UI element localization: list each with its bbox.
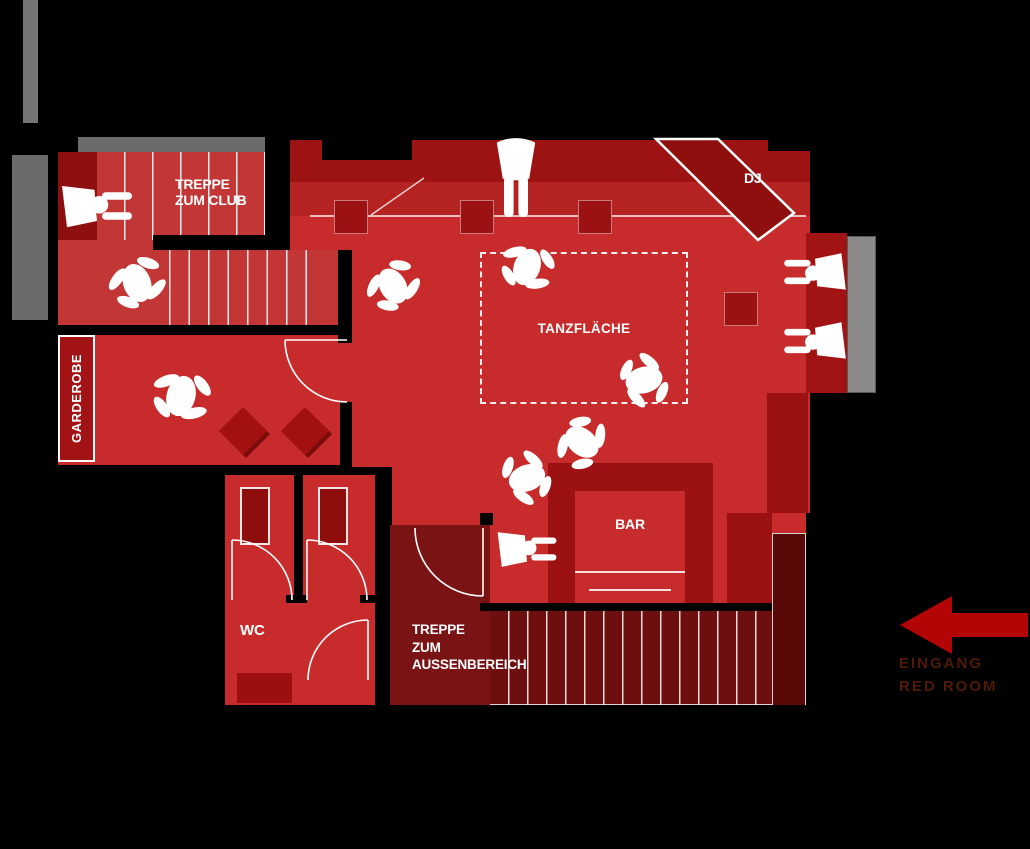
entrance-strip-right bbox=[806, 233, 847, 393]
speaker-box bbox=[578, 200, 612, 234]
wc-sink bbox=[237, 673, 292, 703]
speaker-box bbox=[724, 292, 758, 326]
bar-shelf-line bbox=[589, 589, 671, 591]
speaker-box bbox=[334, 200, 368, 234]
bar-shelf-line bbox=[575, 571, 685, 573]
bar-label: BAR bbox=[575, 516, 685, 532]
wall-sliver bbox=[806, 513, 810, 611]
wall-stub bbox=[480, 513, 493, 525]
wall-segment-top-left bbox=[23, 0, 38, 123]
garderobe-label: GARDEROBE bbox=[58, 335, 95, 462]
room-treppe-aussenbereich bbox=[390, 525, 490, 705]
stair-side-block bbox=[772, 533, 806, 705]
main-room-mid-band bbox=[290, 182, 810, 216]
wall-notch-top bbox=[322, 140, 412, 160]
wall-garderobe-main bbox=[338, 240, 352, 343]
garderobe-door-opening bbox=[340, 337, 352, 402]
floor-edge-line bbox=[310, 215, 806, 217]
treppe-aussenbereich-label: TREPPE ZUM AUSSENBEREICH bbox=[412, 621, 526, 674]
dj-label: DJ bbox=[744, 170, 762, 186]
floor-plan: TANZFLÄCHE bbox=[0, 0, 1030, 849]
wall-notch-top-right bbox=[768, 140, 810, 151]
wall-above-mid-stairs bbox=[153, 235, 303, 250]
wc-label: WC bbox=[240, 622, 265, 639]
dance-floor-label: TANZFLÄCHE bbox=[538, 321, 631, 336]
treppe-zum-club-label: TREPPE ZUM CLUB bbox=[175, 176, 247, 208]
wc-wall-segment bbox=[286, 595, 307, 603]
wall-above-bottom-stairs bbox=[480, 603, 775, 611]
wall-segment-left bbox=[12, 155, 48, 320]
entrance-arrow-icon bbox=[900, 596, 1028, 654]
room-garderobe bbox=[58, 335, 340, 465]
staircase-mid-steps bbox=[169, 250, 308, 325]
toilet bbox=[240, 487, 270, 545]
dark-zone-right-lower bbox=[727, 513, 772, 608]
toilet bbox=[318, 487, 348, 545]
room-treppe-zum-club-landing bbox=[58, 152, 97, 240]
entrance-door-right bbox=[847, 236, 876, 393]
entrance-label: EINGANG RED ROOM bbox=[899, 653, 998, 698]
wall-segment-above-club-stairs bbox=[78, 137, 265, 152]
bar-inner-area bbox=[575, 491, 685, 603]
dance-floor: TANZFLÄCHE bbox=[480, 252, 688, 404]
speaker-box bbox=[460, 200, 494, 234]
staircase-bottom-steps bbox=[508, 611, 774, 705]
dark-zone-right bbox=[767, 393, 808, 513]
wc-stall-divider bbox=[294, 475, 303, 597]
wc-wall-segment bbox=[360, 595, 375, 603]
